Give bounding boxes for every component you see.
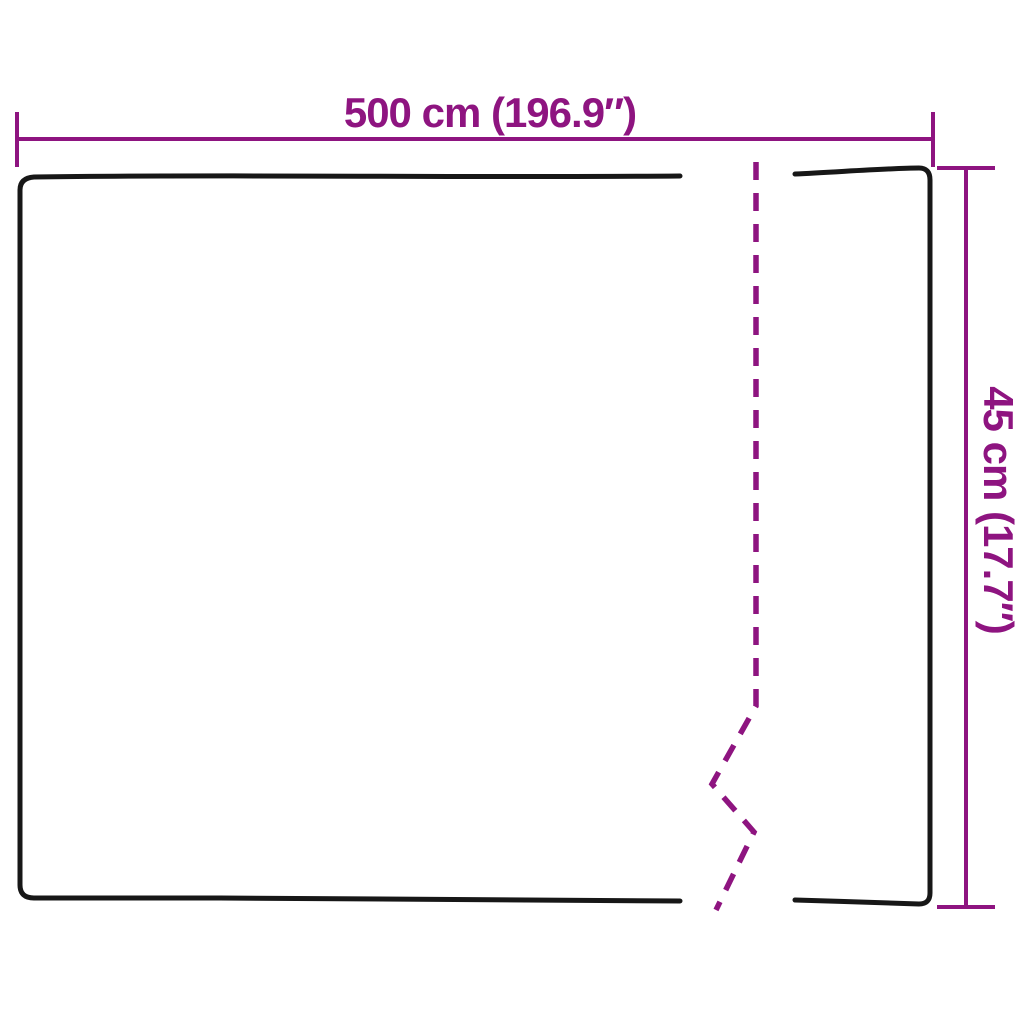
width-dimension-label: 500 cm (196.9″): [344, 89, 636, 136]
dimension-diagram-canvas: 500 cm (196.9″) 45 cm (17.7″): [0, 0, 1024, 1024]
height-dimension: 45 cm (17.7″): [937, 168, 1022, 907]
width-dimension: 500 cm (196.9″): [17, 89, 933, 167]
product-dimension-diagram: 500 cm (196.9″) 45 cm (17.7″): [0, 0, 1024, 1024]
length-break-line: [712, 162, 756, 910]
height-dimension-label: 45 cm (17.7″): [975, 386, 1022, 634]
product-outline-main-section: [20, 176, 680, 901]
product-outline-right-section: [795, 168, 930, 904]
